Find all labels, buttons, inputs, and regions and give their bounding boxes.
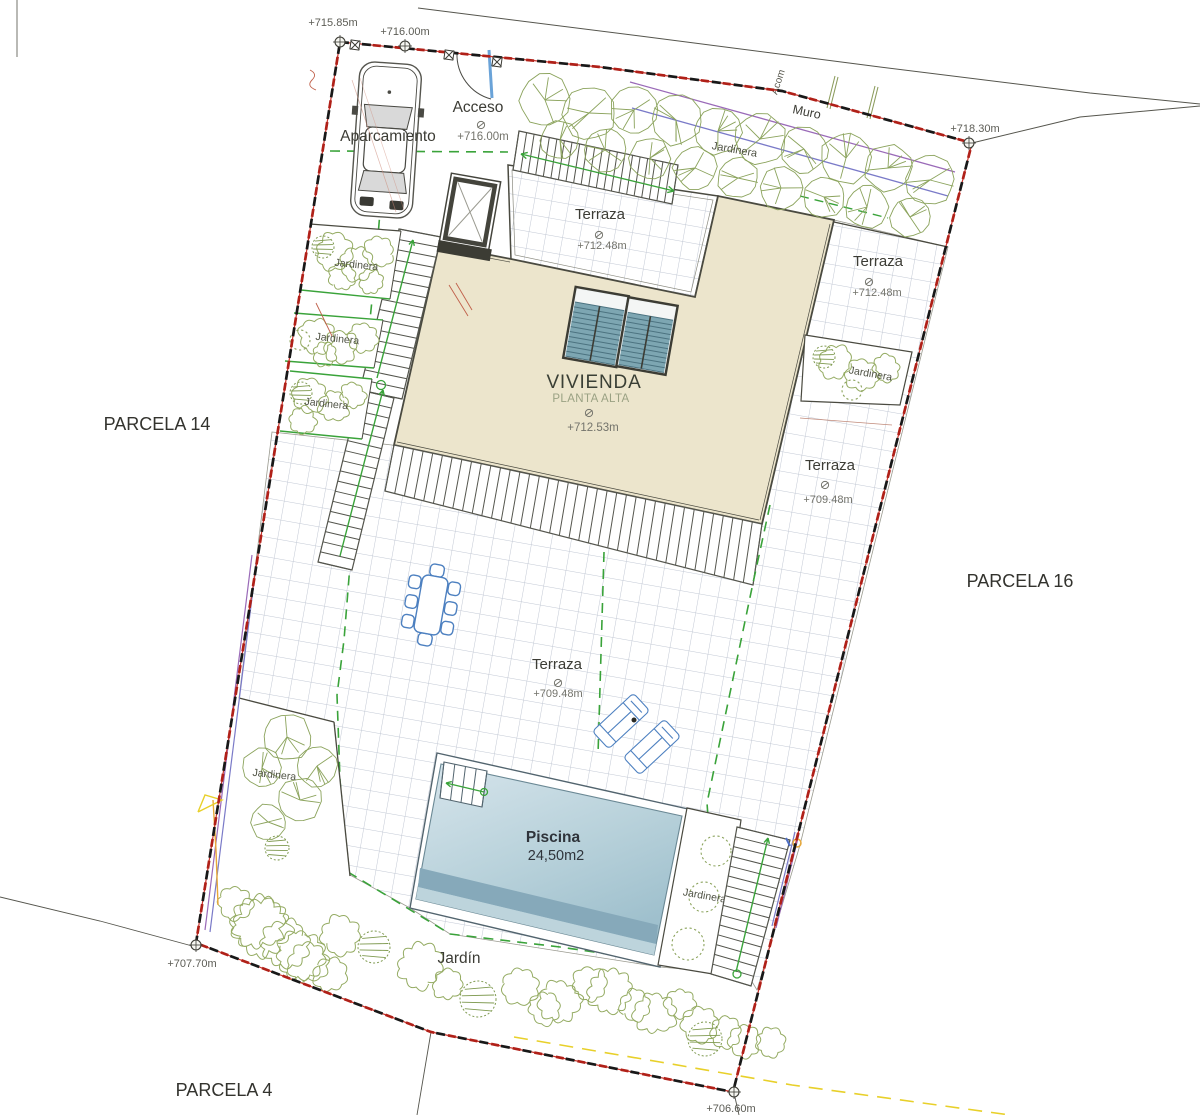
svg-text:Jardín: Jardín — [437, 950, 480, 967]
svg-text:Piscina: Piscina — [526, 829, 581, 846]
svg-text:+706.60m: +706.60m — [706, 1103, 755, 1115]
svg-text:24,50m2: 24,50m2 — [528, 848, 584, 864]
svg-text:Acceso: Acceso — [453, 99, 504, 116]
svg-text:+712.53m: +712.53m — [567, 422, 618, 434]
svg-text:VIVIENDA: VIVIENDA — [546, 372, 641, 393]
svg-text:+718.30m: +718.30m — [950, 123, 999, 135]
svg-text:Terraza: Terraza — [853, 253, 904, 270]
svg-text:+712.48m: +712.48m — [577, 240, 626, 252]
svg-text:+707.70m: +707.70m — [167, 958, 216, 970]
svg-text:+709.48m: +709.48m — [803, 494, 852, 506]
svg-text:Terraza: Terraza — [805, 457, 856, 474]
svg-text:+715.85m: +715.85m — [308, 17, 357, 29]
svg-text:+709.48m: +709.48m — [533, 688, 582, 700]
svg-text:Terraza: Terraza — [575, 206, 626, 223]
svg-text:Terraza: Terraza — [532, 656, 583, 673]
svg-text:PLANTA ALTA: PLANTA ALTA — [552, 393, 629, 405]
svg-text:+716.00m: +716.00m — [457, 131, 508, 143]
svg-text:PARCELA 4: PARCELA 4 — [176, 1080, 273, 1100]
svg-text:PARCELA 16: PARCELA 16 — [967, 571, 1074, 591]
svg-text:+712.48m: +712.48m — [852, 287, 901, 299]
svg-text:+716.00m: +716.00m — [380, 26, 429, 38]
svg-text:PARCELA 14: PARCELA 14 — [104, 414, 211, 434]
svg-text:Aparcamiento: Aparcamiento — [340, 128, 436, 145]
